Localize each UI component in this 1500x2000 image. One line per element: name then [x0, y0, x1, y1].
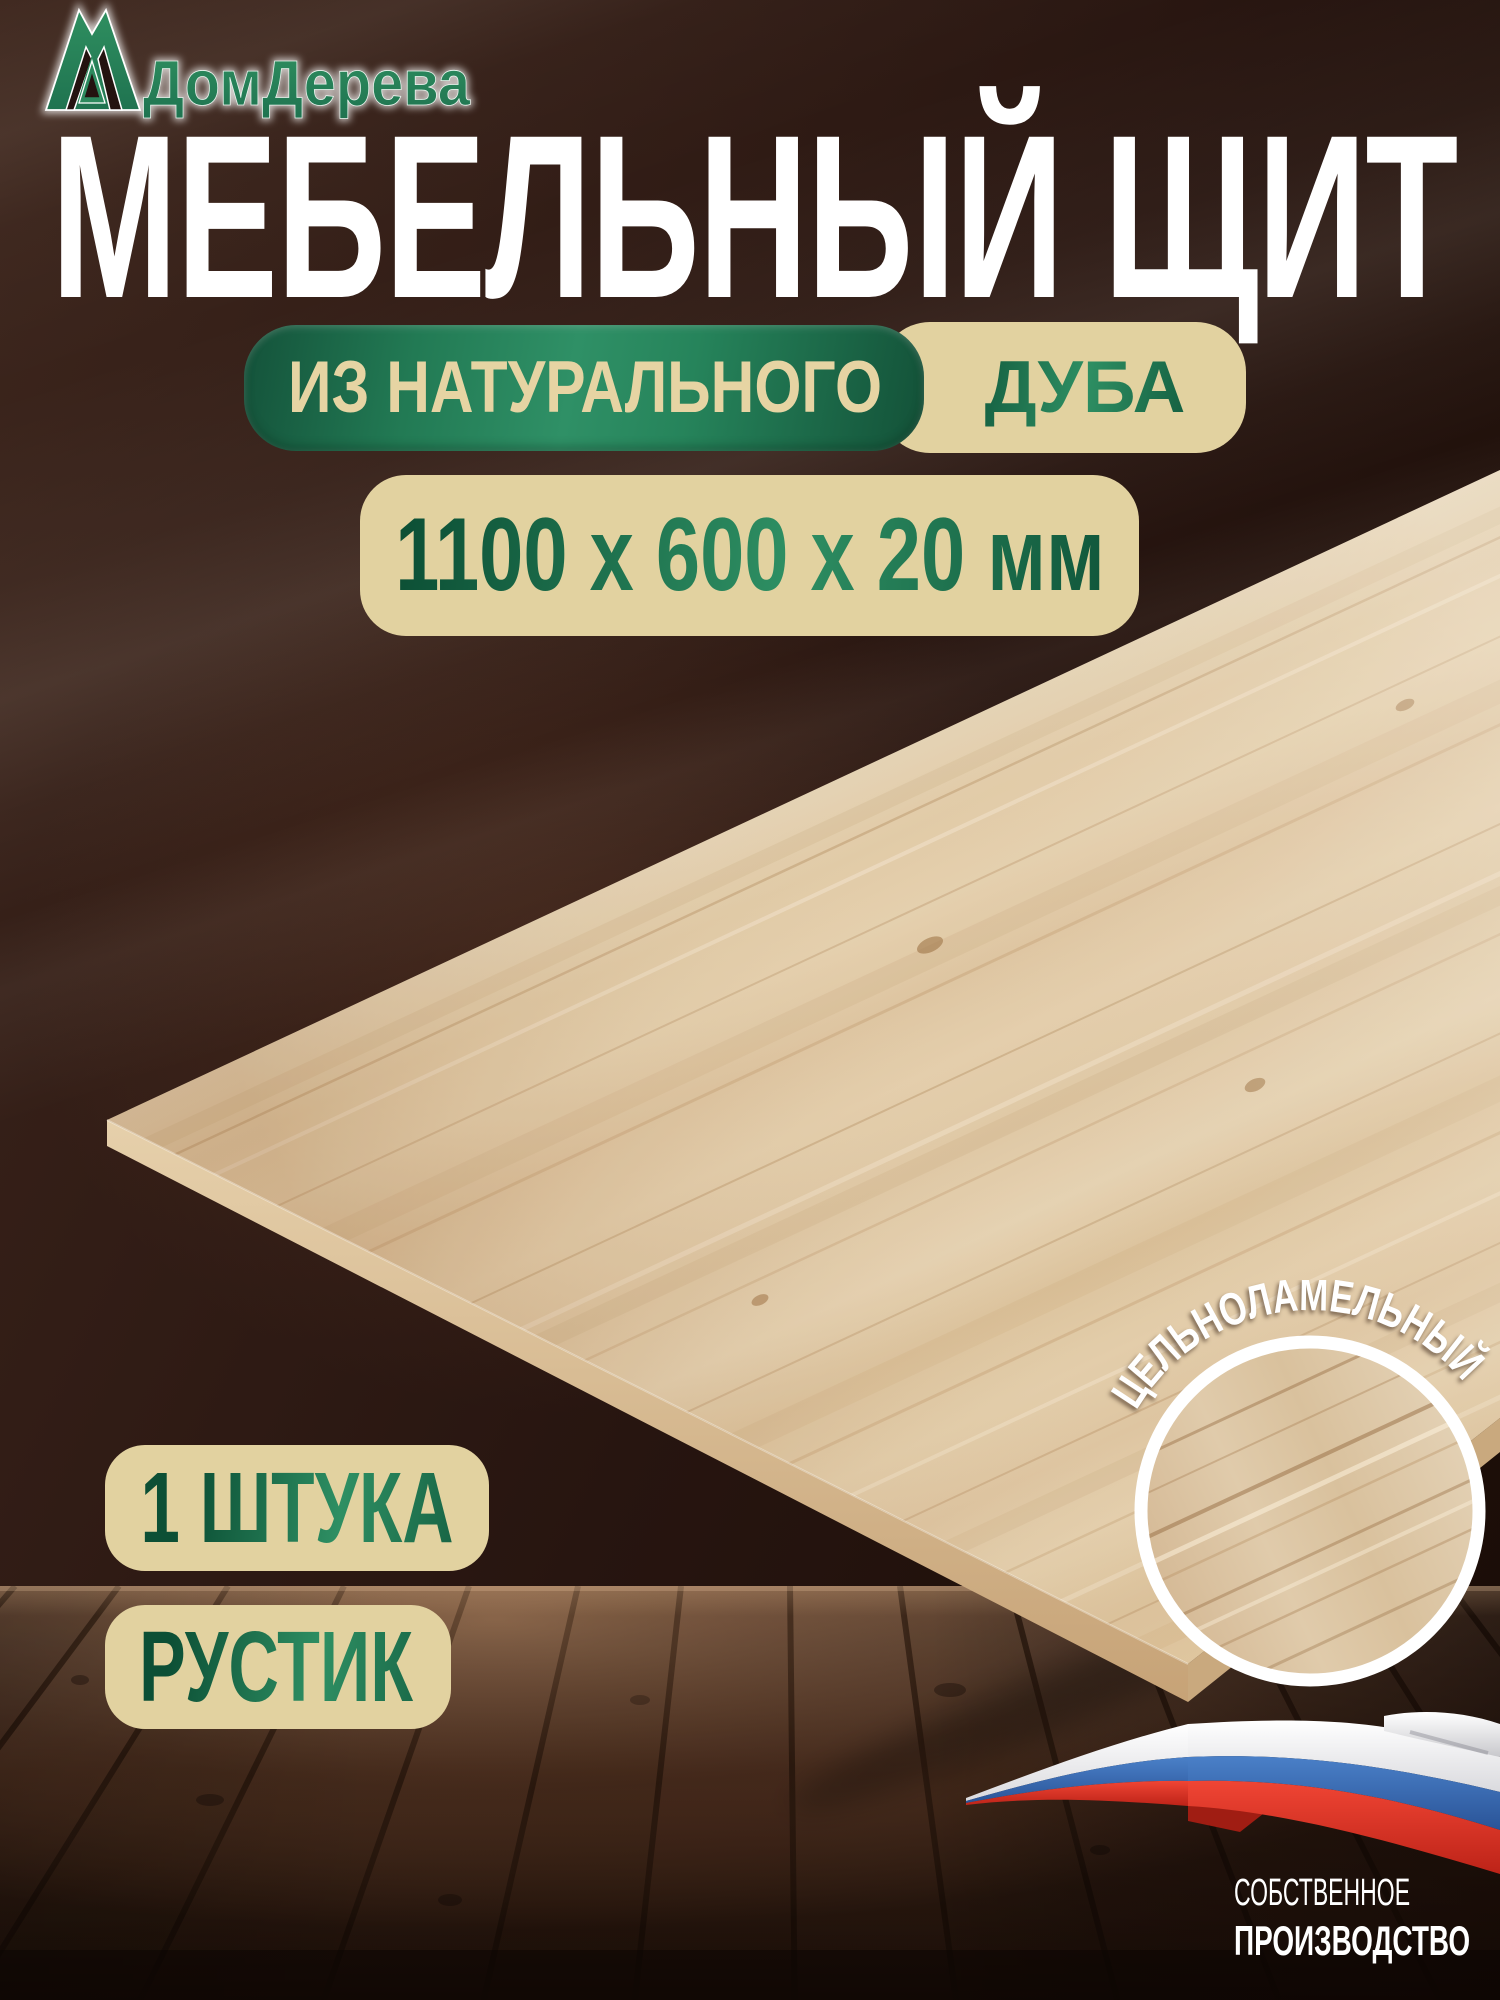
svg-text:ЦЕЛЬНОЛАМЕЛЬНЫЙ: ЦЕЛЬНОЛАМЕЛЬНЫЙ	[1101, 1280, 1494, 1416]
